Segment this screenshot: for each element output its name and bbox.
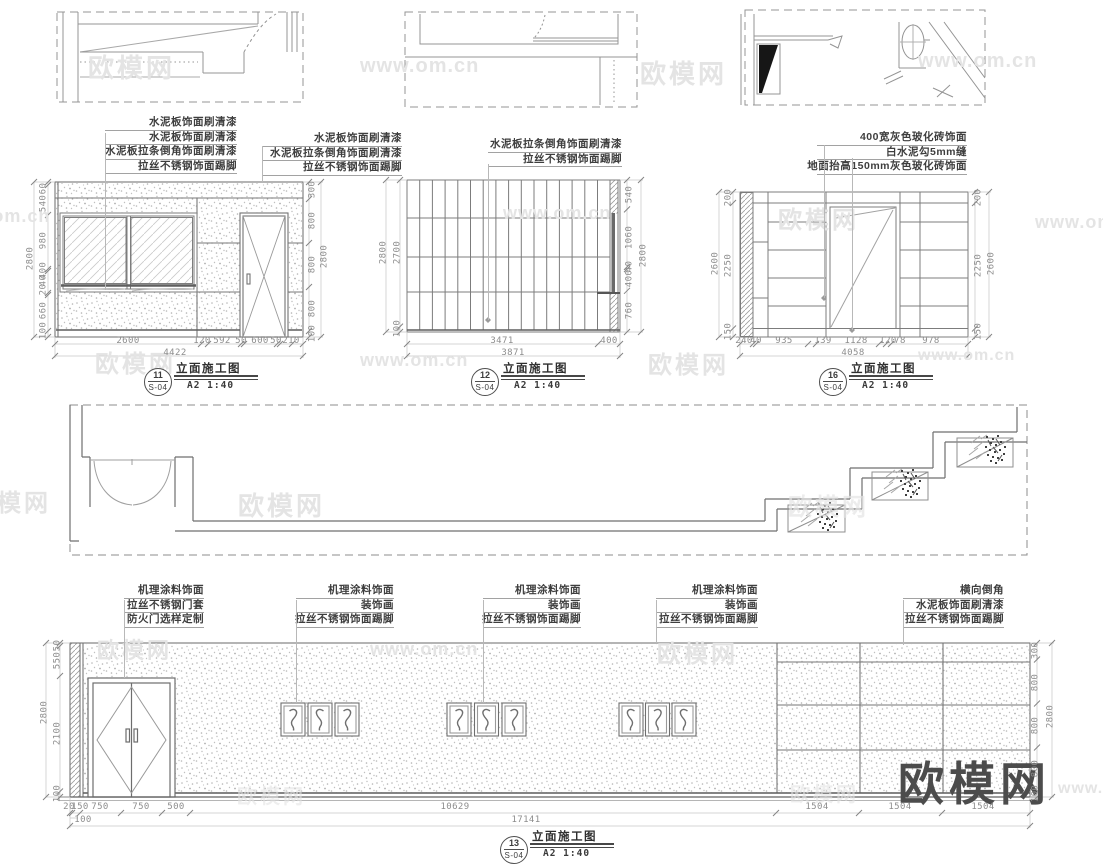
callout-line: 拉丝不锈钢饰面踢脚 <box>105 160 237 175</box>
detail-tag-circle: 12 S-04 <box>471 368 499 396</box>
callout-line: 机理涂料饰面 <box>296 584 394 599</box>
detail-number: 13 <box>504 837 524 850</box>
dim-label: 200 <box>724 170 735 226</box>
callout-line: 水泥板饰面刷清漆 <box>105 131 237 146</box>
scale-label: A2 1:40 <box>187 380 234 391</box>
callout-line: 机理涂料饰面 <box>483 584 581 599</box>
dim-label: 17141 <box>498 815 554 826</box>
elevation-13-drawing <box>58 643 1042 801</box>
watermark-text: 欧模网 <box>788 487 869 522</box>
watermark-text: 欧模网 <box>237 780 306 809</box>
scale-label: A2 1:40 <box>862 380 909 391</box>
callout-line: 拉丝不锈钢饰面踢脚 <box>296 613 394 628</box>
callout-line: 400宽灰色玻化砖饰面 <box>817 131 967 146</box>
dim-label: 100 <box>393 301 404 357</box>
callout-line: 装饰画 <box>656 599 758 614</box>
callout-group-e13-5: 横向倒角 水泥板饰面刷清漆 拉丝不锈钢饰面踢脚 <box>903 584 1004 628</box>
dim-label: 100 <box>1031 766 1042 822</box>
dim-label: 2600 <box>100 336 156 347</box>
watermark-text: www.om.cn <box>503 203 611 224</box>
dim-label: 4422 <box>147 348 203 359</box>
detail-number: 16 <box>823 369 843 382</box>
leader-line <box>296 600 297 703</box>
watermark-text: 欧模网 <box>640 54 727 91</box>
fire-door <box>88 678 175 797</box>
watermark-text: www.om.cn <box>370 639 478 660</box>
scale-label: A2 1:40 <box>514 380 561 391</box>
sheet-number: S-04 <box>472 382 498 393</box>
leader-line <box>483 600 484 703</box>
leader-line <box>903 600 904 645</box>
callout-group-e13-2: 机理涂料饰面 装饰画 拉丝不锈钢饰面踢脚 <box>296 584 394 628</box>
watermark-text: www.om.cn <box>360 350 468 371</box>
leader-line <box>852 158 853 330</box>
callout-line: 拉丝不锈钢饰面踢脚 <box>262 161 402 176</box>
watermark-text: www.om.cn <box>918 347 1015 365</box>
dim-label: 2250 <box>724 238 735 294</box>
double-door-plan <box>90 459 175 505</box>
watermark-text: www.om.cn <box>360 55 479 78</box>
dim-label: 500 <box>148 802 204 813</box>
callout-line: 拉丝不锈钢饰面踢脚 <box>483 613 581 628</box>
drawing-title: 立面施工图 <box>176 360 241 376</box>
watermark-text: 欧模网 <box>778 200 859 235</box>
watermark-text: 欧模网 <box>0 483 51 518</box>
dim-label: 2800 <box>40 685 51 741</box>
watermark-text: 欧模网 <box>657 634 738 669</box>
dim-label: 978 <box>903 336 959 347</box>
watermark-text: www.om.cn <box>1058 780 1103 798</box>
dim-label: 1504 <box>872 802 928 813</box>
leader-line <box>105 133 106 290</box>
dim-label: 150 <box>724 304 735 360</box>
dim-label: 4058 <box>825 348 881 359</box>
callout-line: 机理涂料饰面 <box>124 584 204 599</box>
dim-label: 2800 <box>639 228 650 284</box>
callout-line: 水泥板饰面刷清漆 <box>262 132 402 147</box>
leader-line <box>488 164 489 320</box>
dim-label: 2800 <box>1046 689 1057 745</box>
callout-group-e11-right: 水泥板饰面刷清漆 水泥板拉条倒角饰面刷清漆 拉丝不锈钢饰面踢脚 <box>262 132 402 176</box>
dim-label: 200 <box>974 170 985 226</box>
dim-label: 2800 <box>320 229 331 285</box>
dim-label: 100 <box>53 766 64 822</box>
callout-line: 拉丝不锈钢饰面踢脚 <box>656 613 758 628</box>
dim-label: 2100 <box>53 706 64 762</box>
watermark-text: 欧模网 <box>238 486 325 523</box>
watermark-text: www.om.cn <box>918 50 1037 73</box>
detail-tag-circle: 13 S-04 <box>500 836 528 864</box>
callout-group-e16: 400宽灰色玻化砖饰面 白水泥勾5mm缝 地面抬高150mm灰色玻化砖饰面 <box>817 131 967 175</box>
watermark-text: 欧模网 <box>648 345 729 380</box>
callout-line: 装饰画 <box>483 599 581 614</box>
leader-line <box>824 145 825 298</box>
drawing-title: 立面施工图 <box>503 360 568 376</box>
dim-label: 2250 <box>974 238 985 294</box>
watermark-text: www.om.cn <box>1035 212 1103 233</box>
dim-label: 2600 <box>987 236 998 292</box>
sheet-number: S-04 <box>820 382 846 393</box>
dim-label: 1504 <box>955 802 1011 813</box>
detail-number: 12 <box>475 369 495 382</box>
detail-tag-circle: 16 S-04 <box>819 368 847 396</box>
dim-label: 3471 <box>474 336 530 347</box>
dim-label: 1504 <box>789 802 845 813</box>
detail-tag-circle: 11 S-04 <box>144 368 172 396</box>
callout-line: 装饰画 <box>296 599 394 614</box>
callout-line: 水泥板拉条倒角饰面刷清漆 <box>488 138 622 153</box>
callout-group-e13-3: 机理涂料饰面 装饰画 拉丝不锈钢饰面踢脚 <box>483 584 581 628</box>
callout-line: 机理涂料饰面 <box>656 584 758 599</box>
dim-label: 2800 <box>379 225 390 281</box>
dim-label: 100 <box>39 303 50 359</box>
sheet-number: S-04 <box>145 382 171 393</box>
dim-label: 400 <box>581 336 637 347</box>
dim-label: 2600 <box>711 236 722 292</box>
watermark-text: 欧模网 <box>97 633 172 665</box>
dim-label: 2800 <box>26 231 37 287</box>
dim-label: 550 <box>53 633 64 689</box>
decor-picture-frames <box>281 703 696 736</box>
plan-strip <box>70 405 1027 555</box>
dim-label: 150 <box>974 304 985 360</box>
dim-label: 3871 <box>485 348 541 359</box>
callout-line: 拉丝不锈钢饰面踢脚 <box>488 153 622 168</box>
callout-group-e11-left: 水泥板饰面刷清漆 水泥板饰面刷清漆 水泥板拉条倒角饰面刷清漆 拉丝不锈钢饰面踢脚 <box>105 116 237 174</box>
cad-sheet: 欧模网 www.om.cn 欧模网 www.om.cn www.om.cn 欧模… <box>0 0 1103 865</box>
callout-line: 拉丝不锈钢饰面踢脚 <box>903 613 1004 628</box>
callout-line: 地面抬高150mm灰色玻化砖饰面 <box>817 160 967 175</box>
callout-group-e12: 水泥板拉条倒角饰面刷清漆 拉丝不锈钢饰面踢脚 <box>488 138 622 167</box>
callout-line: 水泥板饰面刷清漆 <box>903 599 1004 614</box>
callout-group-e13-4: 机理涂料饰面 装饰画 拉丝不锈钢饰面踢脚 <box>656 584 758 628</box>
callout-line: 横向倒角 <box>903 584 1004 599</box>
callout-line: 水泥板拉条倒角饰面刷清漆 <box>262 147 402 162</box>
drawing-title: 立面施工图 <box>532 828 597 844</box>
callout-group-e13-1: 机理涂料饰面 拉丝不锈钢门套 防火门选样定制 <box>124 584 204 628</box>
sheet-number: S-04 <box>501 850 527 861</box>
dim-label: 100 <box>55 815 111 826</box>
leader-line <box>262 146 263 182</box>
callout-line: 水泥板拉条倒角饰面刷清漆 <box>105 145 237 160</box>
callout-line: 拉丝不锈钢门套 <box>124 599 204 614</box>
callout-line: 水泥板饰面刷清漆 <box>105 116 237 131</box>
dim-label: 2700 <box>393 225 404 281</box>
dim-label: 760 <box>625 283 636 339</box>
watermark-text: 欧模网 <box>88 48 175 85</box>
elevation-11-drawing <box>55 182 303 337</box>
detail-number: 11 <box>148 369 168 382</box>
leader-line <box>656 600 657 643</box>
dim-label: 210 <box>263 336 319 347</box>
dim-label: 10629 <box>427 802 483 813</box>
drawing-title: 立面施工图 <box>851 360 916 376</box>
callout-line: 防火门选样定制 <box>124 613 204 628</box>
scale-label: A2 1:40 <box>543 848 590 859</box>
leader-line <box>124 600 125 678</box>
callout-line: 白水泥勾5mm缝 <box>817 146 967 161</box>
dim-label: 100 <box>308 306 319 362</box>
